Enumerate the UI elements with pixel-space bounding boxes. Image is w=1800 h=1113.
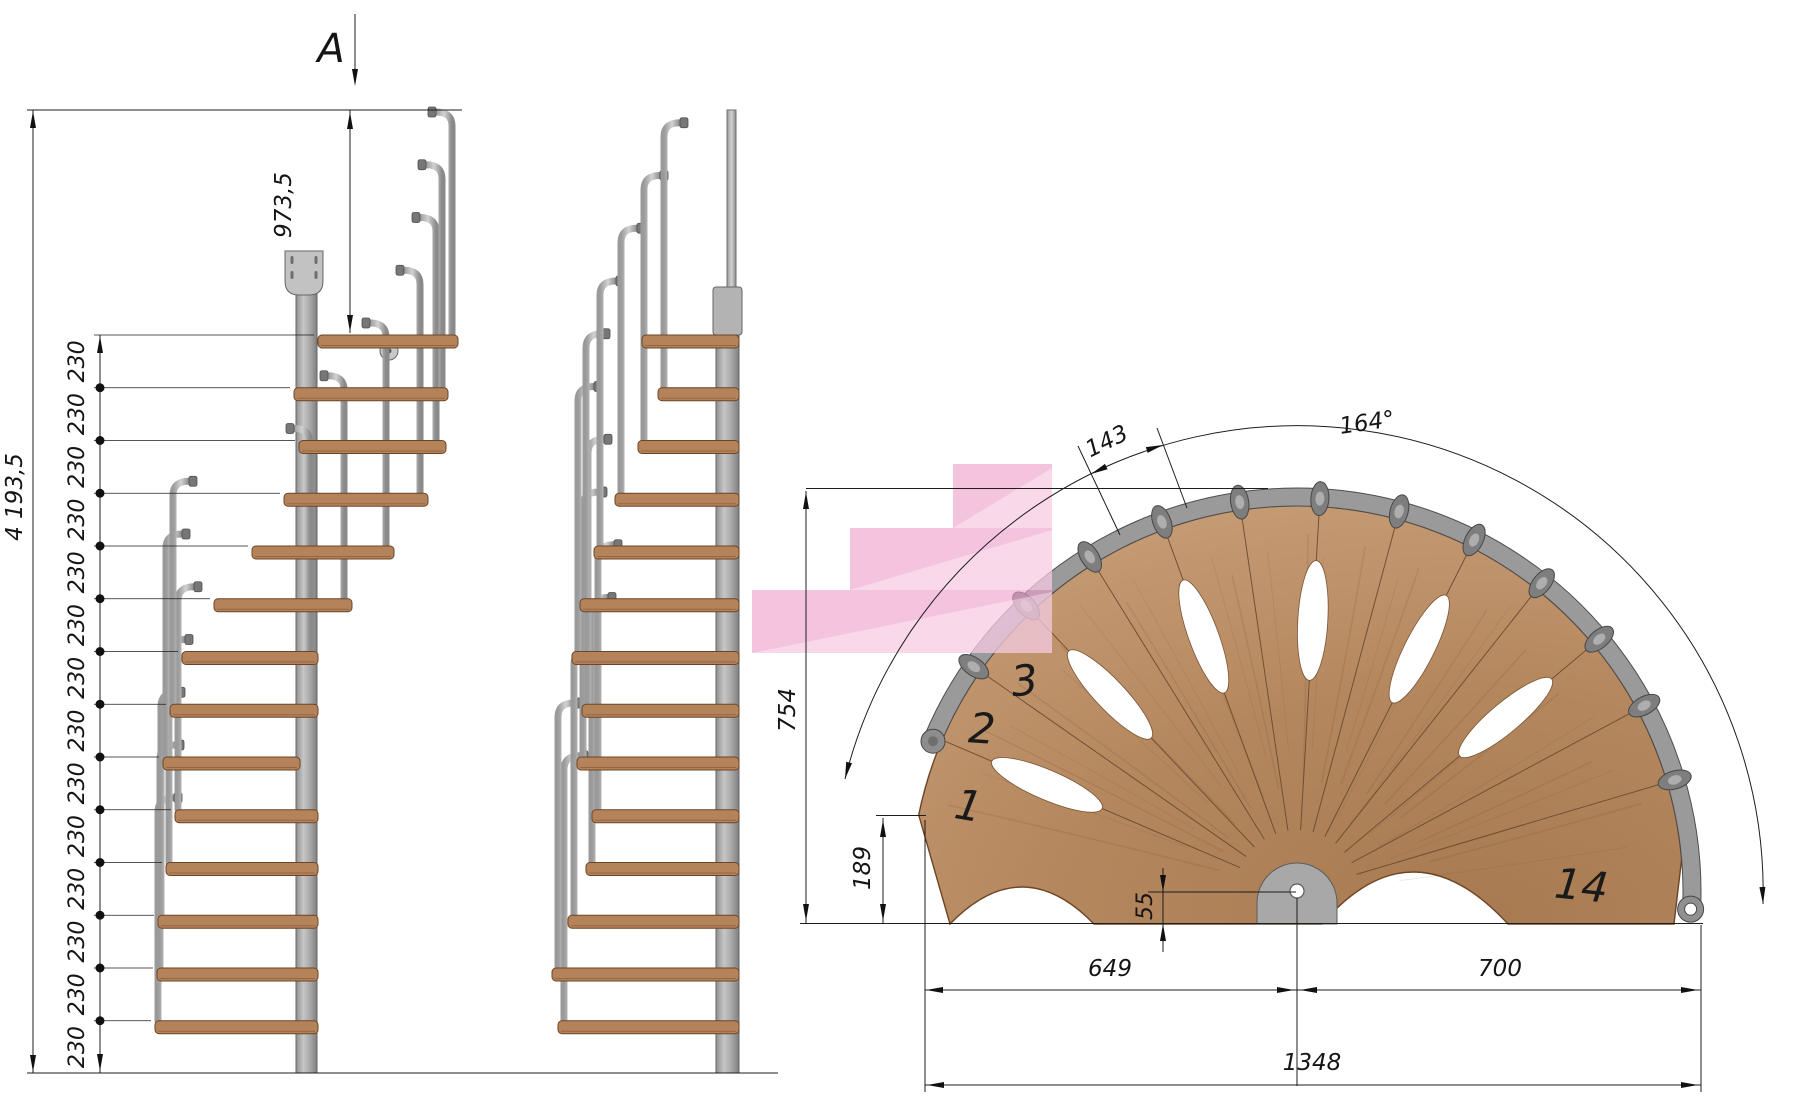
handrail-clamp [189, 476, 197, 486]
bracket-slot [315, 271, 318, 279]
dimension-arrowhead [30, 1055, 36, 1072]
dimension-arrowhead [30, 111, 36, 128]
tread [572, 652, 739, 665]
left-span-label: 649 [1088, 956, 1132, 982]
handrail-clamp [286, 424, 294, 434]
tread [155, 1021, 318, 1034]
handrail-post [621, 228, 637, 493]
handrail-post [600, 281, 616, 546]
bracket-slot [291, 256, 294, 264]
tread [214, 599, 352, 612]
technical-drawing-page: 2302302302302302302302302302302302302302… [0, 0, 1800, 1113]
riser-dim-label: 230 [65, 762, 90, 804]
handrail-clamp [396, 265, 404, 275]
step2-number: 2 [967, 703, 997, 754]
chain-node-dot [96, 436, 105, 445]
chain-node-dot [96, 383, 105, 392]
column-top-sleeve [713, 287, 742, 335]
handrail-clamp [320, 371, 328, 381]
dimension-arrowhead [97, 336, 103, 353]
handrail-clamp [412, 213, 420, 223]
tread [642, 335, 739, 348]
tread [586, 863, 739, 876]
tread [294, 388, 448, 401]
dimension-arrowhead [845, 762, 852, 779]
tread [580, 599, 739, 612]
tread [638, 441, 739, 454]
dimension-arrowhead [1681, 1082, 1698, 1088]
riser-dim-label: 230 [65, 921, 90, 963]
middle-elevation-view [552, 110, 742, 1073]
tread [170, 704, 318, 717]
tread [558, 1021, 739, 1034]
chain-node-dot [96, 542, 105, 551]
chain-node-dot [96, 753, 105, 762]
chain-node-dot [96, 700, 105, 709]
staircase-technical-drawing: 2302302302302302302302302302302302302302… [0, 0, 1800, 1113]
riser-dim-label: 230 [65, 499, 90, 541]
plan-radius-label: 754 [775, 688, 801, 732]
riser-dim-label: 230 [65, 868, 90, 910]
tread [577, 757, 739, 770]
dimension-arrowhead [1681, 987, 1698, 993]
dimension-arrowhead [347, 112, 353, 129]
total-width-label: 1348 [1283, 1050, 1342, 1076]
dimension-arrowhead [352, 69, 358, 86]
handrail-clamp [418, 160, 426, 170]
dimension-arrowhead [1160, 924, 1166, 941]
riser-dim-label: 230 [65, 1026, 90, 1068]
overall-height-label: 4 193,5 [2, 453, 28, 541]
tread [592, 810, 739, 823]
handrail-post [178, 587, 194, 810]
chain-node-dot [96, 1016, 105, 1025]
dimension-arrowhead [1146, 445, 1163, 453]
left-elevation-view [155, 107, 458, 1073]
rim-eyelet-hole [1685, 903, 1697, 915]
handrail-clamp [428, 107, 436, 117]
dimension-arrowhead [97, 1054, 103, 1071]
handrail-clamp [362, 318, 370, 328]
handrail-post [404, 270, 420, 493]
tread [594, 546, 739, 559]
handrail-clamp [680, 118, 688, 128]
tread [299, 441, 446, 454]
tread [182, 652, 318, 665]
chain-node-dot [96, 647, 105, 656]
riser-dim-label: 230 [65, 393, 90, 435]
dimension-arrowhead [1300, 987, 1317, 993]
dimension-arrowhead [880, 820, 886, 837]
dimension-arrowhead [1277, 987, 1294, 993]
riser-dim-label: 230 [65, 551, 90, 593]
tread [158, 915, 318, 928]
section-marker-label: A [314, 26, 344, 72]
riser-dim-label: 230 [65, 973, 90, 1015]
rim-end-cap-center [928, 736, 938, 746]
step-spacing-label: 143 [1082, 420, 1133, 463]
handrail-post [370, 323, 386, 546]
tread [318, 335, 458, 348]
chain-node-dot [96, 594, 105, 603]
dimension-arrowhead [880, 904, 886, 921]
handrail-clamp [604, 434, 612, 444]
highlight-overlay [752, 464, 1052, 653]
riser-dim-label: 230 [65, 446, 90, 488]
dimension-arrowhead [1091, 464, 1108, 474]
chain-node-dot [96, 858, 105, 867]
handrail-clamp [185, 635, 193, 645]
riser-dim-label: 230 [65, 815, 90, 857]
tread [166, 863, 318, 876]
dimension-arrowhead [803, 904, 809, 921]
step14-number: 14 [1552, 858, 1610, 912]
tread [284, 493, 428, 506]
dimension-arrowhead [1759, 887, 1765, 904]
handrail-post [644, 176, 660, 441]
dimension-arrowhead [926, 987, 943, 993]
tread [568, 915, 739, 928]
step-nose-label: 189 [850, 846, 876, 890]
tread [163, 757, 300, 770]
newel-extension [727, 110, 736, 292]
chain-node-dot [96, 805, 105, 814]
tread [175, 810, 318, 823]
handrail-clamp [194, 582, 202, 592]
dimension-arrowhead [927, 1082, 944, 1088]
chain-node-dot [96, 489, 105, 498]
tread [658, 388, 739, 401]
tread [552, 968, 739, 981]
step3-number: 3 [1009, 655, 1041, 707]
pole-anchor-hole [1290, 884, 1304, 898]
top-offset-label: 973,5 [271, 172, 297, 238]
center-column [296, 292, 317, 1073]
dimension-arrowhead [347, 315, 353, 332]
bracket-slot [291, 271, 294, 279]
right-span-label: 700 [1478, 956, 1522, 982]
tread [157, 968, 318, 981]
chain-node-dot [96, 964, 105, 973]
riser-dim-label: 230 [65, 604, 90, 646]
tread [252, 546, 394, 559]
pole-offset-label: 55 [1133, 892, 1158, 920]
tread [615, 493, 739, 506]
chain-node-dot [96, 911, 105, 920]
riser-dim-label: 230 [65, 657, 90, 699]
riser-dim-label: 230 [65, 340, 90, 382]
riser-dim-label: 230 [65, 710, 90, 752]
handrail-clamp [182, 529, 190, 539]
dimension-arrowhead [803, 492, 809, 509]
handrail-post [328, 376, 344, 599]
center-column [716, 290, 739, 1073]
bracket-slot [315, 256, 318, 264]
tread [582, 704, 739, 717]
